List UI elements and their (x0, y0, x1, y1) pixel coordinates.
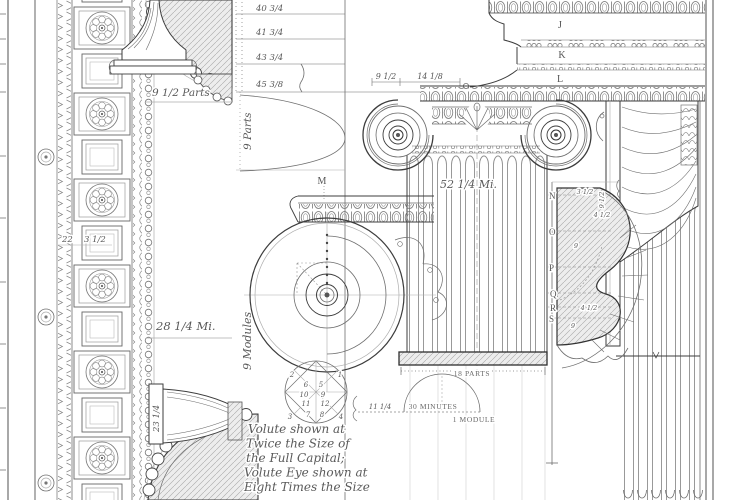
scale-tick-1: 40 3/4 (255, 4, 283, 14)
section-dim-1: 3 1/2 (577, 188, 594, 196)
eye-num-9: 9 (321, 391, 326, 399)
caption-line-3: the Full Capital; (246, 451, 345, 465)
band-letter-k: K (558, 50, 566, 61)
modillion-bracket-dim: 23 1/4 (152, 405, 162, 433)
capital-crown: 9 1/2 14 1/8 (372, 72, 705, 101)
engraving-plate: 9 1/2 Parts 22 3 1/2 28 1/4 Mi. 23 1/4 4… (0, 0, 731, 500)
soffit-dim-a: 22 (61, 235, 73, 245)
section-dim-4: 4 1/2 (580, 304, 598, 312)
modules-label: 9 Modules (241, 311, 254, 370)
eye-num-1: 1 (338, 371, 342, 379)
plan-diagram: 18 PARTS 30 MINUTES 1 MODULE 11 1/4 (353, 352, 547, 424)
scale-tick-4: 45 3/8 (255, 80, 284, 90)
section-letter-r: R (550, 303, 556, 313)
modillion-bottom: 23 1/4 (143, 384, 258, 500)
band-letter-l: L (557, 74, 563, 85)
caption-line-4: Volute Eye shown at (244, 466, 368, 480)
scale-tick-2: 41 3/4 (255, 28, 283, 38)
section-dim-2: 4 1/2 (593, 211, 611, 219)
scale-tick-3: 43 3/4 (255, 53, 283, 63)
caption-line-2: Twice the Size of (246, 437, 352, 451)
column-shaft: 52 1/4 Mi. (407, 108, 547, 500)
caption-line-5: Eight Times the Size (243, 480, 370, 494)
section-letter-p: P (549, 263, 554, 273)
plan-parts-label: 18 PARTS (454, 369, 490, 378)
section-letter-s: S (549, 314, 554, 324)
capital-dim-right: 14 1/8 (417, 72, 443, 81)
eye-num-11: 11 (302, 400, 311, 408)
section-letter-n: N (549, 191, 556, 201)
eye-num-6: 6 (304, 381, 309, 389)
section-dim-5: 9 (571, 322, 575, 330)
scale-parts-label: 9 Parts (242, 112, 254, 150)
section-dim-3: 9 (574, 242, 578, 250)
eye-num-7: 7 (306, 411, 311, 419)
scale-column: 40 3/4 41 3/4 43 3/4 45 3/8 9 Parts (236, 2, 420, 172)
soffit-plan-strip (35, 0, 154, 500)
plan-dim: 11 1/4 (369, 403, 391, 411)
shaft-height-label: 52 1/4 Mi. (440, 178, 497, 191)
section-side-dim: 9 1/2 (598, 192, 606, 209)
plan-minutes-label: 30 MINUTES (409, 402, 458, 411)
eye-num-10: 10 (300, 391, 309, 399)
eye-num-4: 4 (338, 413, 343, 421)
eye-num-2: 2 (289, 371, 295, 379)
entablature: J K L (463, 0, 705, 89)
caption: Volute shown at Twice the Size of the Fu… (243, 422, 370, 494)
abacus-letter-m: M (318, 176, 327, 187)
band-letter-j: J (558, 20, 562, 31)
eye-num-5: 5 (319, 381, 324, 389)
plan-module-label: 1 MODULE (453, 415, 496, 424)
soffit-parts-label: 9 1/2 Parts (152, 87, 210, 99)
eye-num-3: 3 (288, 413, 293, 421)
volute-eye-diagram: 1 2 3 4 5 6 7 8 9 10 11 12 (285, 361, 347, 423)
eye-num-8: 8 (320, 411, 325, 419)
capital-dim-left: 9 1/2 (376, 72, 397, 81)
section-letter-o: O (549, 227, 556, 237)
soffit-dim-b: 3 1/2 (84, 235, 106, 245)
caption-line-1: Volute shown at (248, 422, 345, 436)
soffit-height-label: 28 1/4 Mi. (155, 319, 216, 333)
paterae (38, 149, 54, 491)
eye-num-12: 12 (321, 400, 330, 408)
volute-left (363, 100, 433, 170)
section-letter-q: Q (550, 289, 557, 299)
